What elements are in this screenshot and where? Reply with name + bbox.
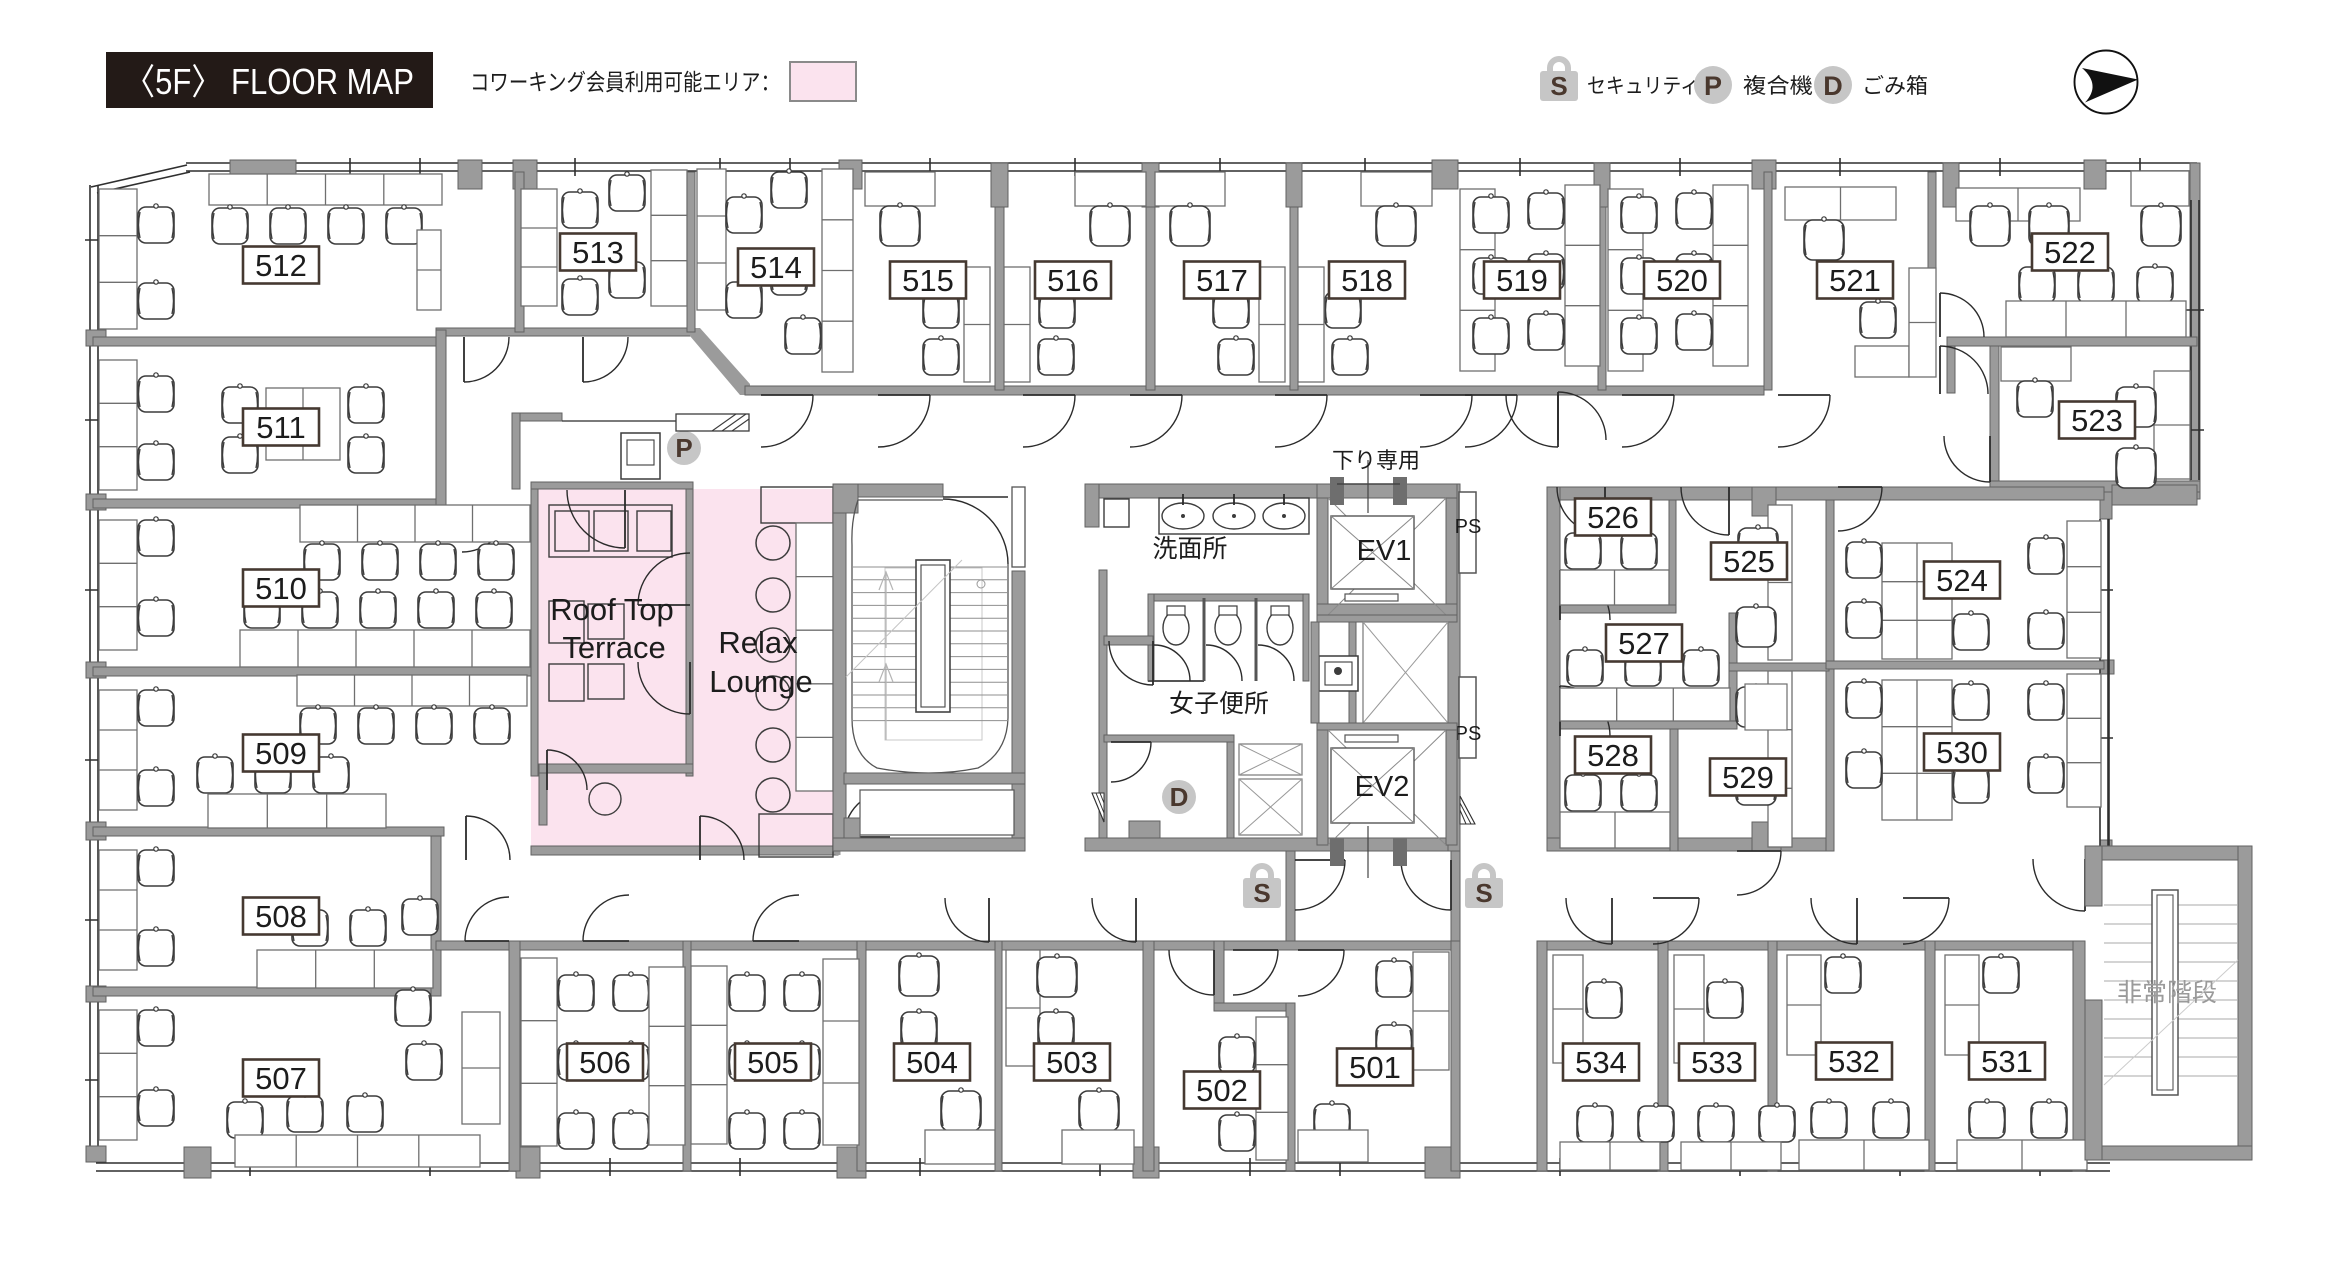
svg-text:ごみ箱: ごみ箱 [1862,75,1928,98]
svg-text:514: 514 [750,250,802,285]
svg-text:EV2: EV2 [1355,771,1410,803]
svg-text:505: 505 [747,1045,799,1080]
svg-text:529: 529 [1722,760,1774,795]
svg-text:521: 521 [1829,263,1881,298]
svg-text:セキュリティ: セキュリティ [1587,75,1699,98]
svg-text:P: P [1704,71,1722,101]
svg-text:531: 531 [1981,1044,2033,1079]
svg-text:526: 526 [1587,500,1639,535]
svg-text:509: 509 [255,736,307,771]
svg-text:下り専用: 下り専用 [1332,448,1420,473]
svg-text:516: 516 [1047,263,1099,298]
svg-text:515: 515 [902,263,954,298]
svg-text:S: S [1550,71,1567,101]
svg-text:507: 507 [255,1061,307,1096]
svg-text:D: D [1170,782,1189,812]
svg-text:528: 528 [1587,738,1639,773]
svg-text:518: 518 [1341,263,1393,298]
svg-text:501: 501 [1349,1050,1401,1085]
svg-text:D: D [1823,71,1843,101]
svg-text:Terrace: Terrace [562,630,665,665]
svg-text:コワーキング会員利用可能エリア：: コワーキング会員利用可能エリア： [470,69,780,95]
svg-text:517: 517 [1196,263,1248,298]
svg-text:女子便所: 女子便所 [1169,690,1269,718]
svg-text:533: 533 [1691,1045,1743,1080]
svg-text:洗面所: 洗面所 [1152,535,1227,563]
svg-text:〈5F〉 FLOOR MAP: 〈5F〉 FLOOR MAP [124,61,414,102]
svg-text:複合機: 複合機 [1743,75,1813,98]
svg-text:523: 523 [2071,403,2123,438]
svg-text:510: 510 [255,571,307,606]
svg-text:508: 508 [255,899,307,934]
svg-text:525: 525 [1723,544,1775,579]
svg-text:506: 506 [579,1045,631,1080]
svg-text:524: 524 [1936,563,1988,598]
svg-text:PS: PS [1455,516,1482,538]
svg-text:503: 503 [1046,1045,1098,1080]
svg-text:522: 522 [2044,235,2096,270]
svg-text:非常階段: 非常階段 [2117,979,2217,1007]
svg-text:512: 512 [255,248,307,283]
svg-text:534: 534 [1575,1045,1627,1080]
svg-text:527: 527 [1618,626,1670,661]
svg-text:504: 504 [906,1045,958,1080]
svg-text:S: S [1475,878,1492,908]
svg-text:532: 532 [1828,1044,1880,1079]
svg-text:P: P [675,433,692,463]
svg-text:502: 502 [1196,1073,1248,1108]
svg-text:EV1: EV1 [1357,535,1412,567]
svg-text:Roof Top: Roof Top [550,592,674,627]
svg-text:Lounge: Lounge [709,664,812,699]
svg-text:511: 511 [256,410,305,445]
svg-text:520: 520 [1656,263,1708,298]
svg-text:519: 519 [1496,263,1548,298]
svg-text:Relax: Relax [718,625,798,660]
svg-text:513: 513 [572,235,624,270]
svg-text:PS: PS [1455,723,1482,745]
svg-text:530: 530 [1936,735,1988,770]
svg-text:S: S [1253,878,1270,908]
